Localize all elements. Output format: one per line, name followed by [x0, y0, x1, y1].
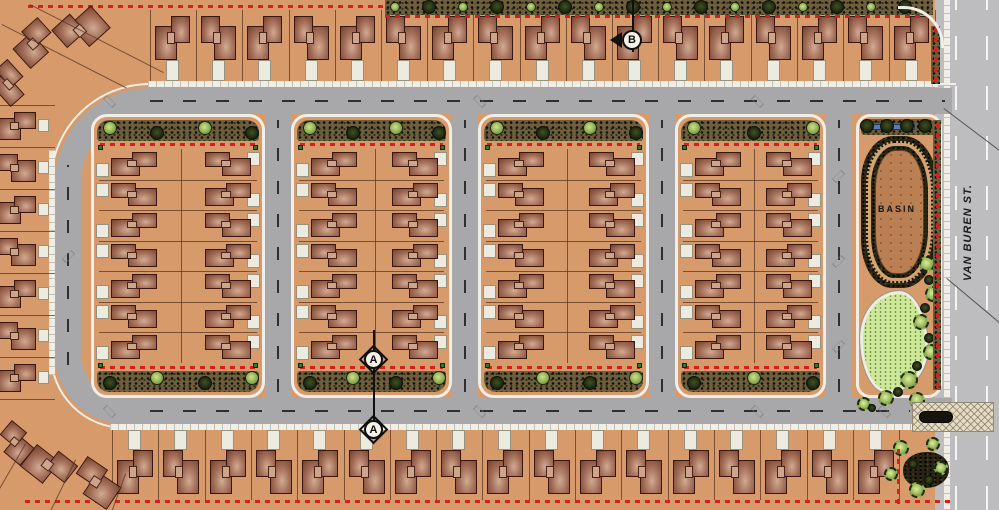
tree: [103, 376, 117, 390]
house-court: [10, 122, 19, 130]
accent-shrub: [98, 145, 103, 150]
house-court: [167, 32, 175, 44]
house: [392, 335, 438, 359]
house: [709, 16, 744, 60]
house-court: [127, 313, 137, 320]
section-marker-a-lower: A: [364, 420, 383, 439]
lot-line: [150, 10, 151, 81]
house: [589, 183, 635, 207]
driveway: [38, 203, 49, 216]
lot-line: [520, 10, 521, 81]
red-hedge: [300, 143, 443, 146]
house-court: [327, 221, 337, 228]
street-tree: [762, 0, 776, 14]
street-centerline: [150, 100, 945, 102]
tree: [490, 376, 504, 390]
house-court: [127, 160, 137, 167]
landscape-strip: [97, 120, 259, 141]
house: [0, 280, 36, 308]
shrub: [893, 387, 903, 397]
tree: [687, 121, 701, 135]
lot-line: [299, 271, 444, 272]
house: [766, 274, 812, 298]
house-court: [268, 466, 276, 478]
house: [695, 213, 741, 237]
driveway: [96, 224, 109, 238]
house-court: [711, 252, 721, 259]
house: [498, 183, 544, 207]
house: [525, 16, 560, 60]
house: [756, 16, 791, 60]
house-court: [327, 160, 337, 167]
lot-line: [0, 147, 55, 148]
house-court: [221, 252, 231, 259]
house: [302, 450, 338, 494]
house-court: [514, 252, 524, 259]
driveway: [296, 224, 309, 238]
driveway: [813, 60, 826, 81]
palm-tree: [918, 119, 932, 133]
house-court: [361, 466, 369, 478]
house-court: [453, 466, 461, 478]
street-tree: [458, 2, 468, 12]
house: [311, 213, 357, 237]
lot-line: [427, 10, 428, 81]
lot-line: [704, 10, 705, 81]
lot-line: [99, 210, 257, 211]
red-hedge: [487, 366, 640, 369]
landscape-strip: [97, 371, 259, 392]
driveway: [296, 163, 309, 177]
palm-tree: [900, 119, 914, 133]
house-court: [408, 191, 418, 198]
driveway: [96, 305, 109, 319]
driveway: [637, 430, 650, 450]
house: [589, 152, 635, 176]
house-court: [127, 252, 137, 259]
house: [766, 244, 812, 268]
street-centerline: [277, 120, 279, 392]
driveway: [483, 244, 496, 258]
house-court: [537, 32, 545, 44]
house: [487, 450, 523, 494]
house: [163, 450, 199, 494]
accent-shrub: [253, 145, 258, 150]
residential-block: [478, 114, 649, 398]
tree: [747, 371, 761, 385]
house: [392, 274, 438, 298]
boundary-red: [936, 122, 939, 388]
house: [441, 450, 477, 494]
lot-line: [482, 430, 483, 500]
lot-line: [299, 210, 444, 211]
house: [311, 305, 357, 329]
driveway: [397, 60, 410, 81]
park-tree: [909, 482, 925, 498]
house-court: [711, 221, 721, 228]
landscape-strip: [484, 371, 643, 392]
shrub: [868, 404, 876, 412]
lot-line: [760, 430, 761, 500]
house: [589, 244, 635, 268]
lot-line: [0, 315, 55, 316]
house: [205, 244, 251, 268]
park-tree: [934, 461, 948, 475]
house: [311, 274, 357, 298]
driveway: [582, 60, 595, 81]
house-court: [860, 32, 868, 44]
house-court: [583, 32, 591, 44]
house-court: [408, 160, 418, 167]
tree: [629, 126, 643, 140]
accent-shrub: [682, 145, 687, 150]
house: [392, 213, 438, 237]
house-court: [127, 221, 137, 228]
house: [392, 244, 438, 268]
house: [719, 450, 755, 494]
house: [205, 335, 251, 359]
lot-line: [0, 357, 55, 358]
driveway: [680, 305, 693, 319]
house: [386, 16, 421, 60]
house: [848, 16, 883, 60]
lot-line: [99, 180, 257, 181]
house: [498, 305, 544, 329]
driveway: [305, 60, 318, 81]
house-court: [605, 282, 615, 289]
house: [8, 17, 60, 69]
driveway: [859, 60, 872, 81]
lot-line: [299, 241, 444, 242]
house-court: [605, 252, 615, 259]
house: [395, 450, 431, 494]
street-tree: [422, 0, 436, 14]
driveway: [498, 430, 511, 450]
driveway: [351, 60, 364, 81]
driveway: [905, 60, 918, 81]
lot-line: [853, 430, 854, 500]
house: [673, 450, 709, 494]
lot-line: [486, 241, 641, 242]
lot-line: [754, 149, 755, 363]
house-court: [127, 343, 137, 350]
lot-line: [486, 302, 641, 303]
park-tree: [893, 440, 909, 456]
house: [695, 274, 741, 298]
house: [0, 196, 36, 224]
house: [210, 450, 246, 494]
lot-line: [99, 271, 257, 272]
street-tree: [866, 2, 876, 12]
street-tree: [390, 2, 400, 12]
lot-line: [889, 10, 890, 81]
house-court: [408, 252, 418, 259]
lot-line: [683, 332, 818, 333]
house: [589, 274, 635, 298]
house-court: [685, 466, 693, 478]
driveway: [680, 224, 693, 238]
lot-line: [807, 430, 808, 500]
street-tree: [694, 0, 708, 14]
lot-line: [486, 271, 641, 272]
house: [802, 16, 837, 60]
house-court: [605, 343, 615, 350]
driveway: [258, 60, 271, 81]
boundary-red: [897, 448, 900, 504]
house: [766, 183, 812, 207]
house: [111, 244, 157, 268]
house-court: [10, 206, 19, 214]
house: [117, 450, 153, 494]
lot-line: [473, 10, 474, 81]
accent-shrub: [637, 145, 642, 150]
basin-label: BASIN: [866, 205, 928, 214]
park-tree: [913, 314, 929, 330]
lot-line: [486, 210, 641, 211]
house-court: [314, 466, 322, 478]
lot-line: [181, 149, 182, 363]
house: [205, 183, 251, 207]
house: [812, 450, 848, 494]
lot-line: [205, 430, 206, 500]
street-tree: [730, 2, 740, 12]
site-plan-drawing: [0, 0, 999, 510]
driveway: [443, 60, 456, 81]
house: [155, 16, 190, 60]
driveway: [483, 346, 496, 360]
street-centerline: [150, 410, 910, 412]
house: [663, 16, 698, 60]
house-court: [306, 32, 314, 44]
tree: [303, 376, 317, 390]
house-court: [514, 221, 524, 228]
lot-line: [843, 10, 844, 81]
driveway: [96, 346, 109, 360]
driveway: [296, 183, 309, 197]
section-marker-a-upper: A: [364, 350, 383, 369]
house-court: [10, 248, 19, 256]
house: [765, 450, 801, 494]
section-arrow-b-icon: [610, 32, 622, 48]
accent-shrub: [440, 145, 445, 150]
house: [695, 305, 741, 329]
house: [0, 322, 36, 350]
house-court: [408, 343, 418, 350]
house-court: [327, 313, 337, 320]
lot-line: [289, 10, 290, 81]
house-court: [546, 466, 554, 478]
house: [392, 305, 438, 329]
house: [111, 305, 157, 329]
driveway: [96, 163, 109, 177]
lot-line: [344, 430, 345, 500]
accent-shrub: [298, 145, 303, 150]
driveway: [128, 430, 141, 450]
lot-line: [335, 10, 336, 81]
house-court: [213, 32, 221, 44]
house: [392, 152, 438, 176]
driveway: [483, 285, 496, 299]
driveway: [296, 285, 309, 299]
driveway: [38, 119, 49, 132]
section-marker-b: B: [622, 30, 642, 50]
house-court: [777, 466, 785, 478]
driveway: [212, 60, 225, 81]
house: [626, 450, 662, 494]
driveway: [536, 60, 549, 81]
van-buren-street-label: VAN BUREN ST.: [962, 172, 986, 294]
lot-line: [683, 210, 818, 211]
lot-line: [683, 180, 818, 181]
driveway: [96, 183, 109, 197]
driveway: [869, 430, 882, 450]
driveway: [680, 163, 693, 177]
house-court: [782, 252, 792, 259]
house: [205, 305, 251, 329]
driveway: [489, 60, 502, 81]
landscape-strip: [484, 120, 643, 141]
driveway: [38, 245, 49, 258]
house-court: [514, 160, 524, 167]
tree: [629, 371, 643, 385]
house: [311, 335, 357, 359]
accent-shrub: [485, 363, 490, 368]
accent-shrub: [98, 363, 103, 368]
tree: [245, 126, 259, 140]
lot-line: [0, 273, 55, 274]
lot-line: [0, 231, 55, 232]
house: [205, 152, 251, 176]
lot-line: [299, 180, 444, 181]
house: [392, 183, 438, 207]
lot-line: [621, 430, 622, 500]
lot-line: [297, 430, 298, 500]
house-court: [129, 466, 137, 478]
house-court: [222, 466, 230, 478]
tree: [198, 376, 212, 390]
street-tree: [662, 2, 672, 12]
lot-line: [99, 241, 257, 242]
driveway: [38, 329, 49, 342]
accent-shrub: [814, 363, 819, 368]
house-court: [711, 160, 721, 167]
house: [766, 152, 812, 176]
house: [589, 213, 635, 237]
boundary-red: [385, 15, 933, 18]
lot-line: [99, 332, 257, 333]
driveway: [720, 60, 733, 81]
palm-tree: [860, 119, 874, 133]
lot-line: [299, 332, 444, 333]
house-court: [782, 160, 792, 167]
house: [111, 213, 157, 237]
shrub: [908, 459, 918, 469]
boundary-red: [25, 500, 953, 503]
entry-monument: [919, 411, 953, 423]
lot-line: [714, 430, 715, 500]
house: [247, 16, 282, 60]
street-tree: [594, 2, 604, 12]
lot-line: [251, 430, 252, 500]
house: [0, 238, 36, 266]
lot-line: [390, 430, 391, 500]
house-court: [407, 466, 415, 478]
house: [349, 450, 385, 494]
lot-line: [683, 302, 818, 303]
house-court: [605, 191, 615, 198]
red-hedge: [684, 143, 817, 146]
house-court: [711, 282, 721, 289]
section-letter-b: B: [628, 34, 636, 46]
house-court: [514, 282, 524, 289]
tree: [490, 121, 504, 135]
accent-shrub: [253, 363, 258, 368]
driveway: [730, 430, 743, 450]
driveway: [545, 430, 558, 450]
lot-line: [0, 189, 55, 190]
lot-line: [566, 10, 567, 81]
lot-line: [529, 430, 530, 500]
house-court: [605, 160, 615, 167]
driveway: [452, 430, 465, 450]
driveway: [406, 430, 419, 450]
driveway: [483, 305, 496, 319]
house: [205, 213, 251, 237]
house: [294, 16, 329, 60]
shrub: [924, 475, 934, 485]
house: [111, 152, 157, 176]
driveway: [96, 244, 109, 258]
house: [111, 183, 157, 207]
tree: [389, 376, 403, 390]
house-court: [10, 164, 19, 172]
lot-line: [99, 302, 257, 303]
driveway: [483, 183, 496, 197]
driveway: [296, 346, 309, 360]
driveway: [483, 224, 496, 238]
house-court: [490, 32, 498, 44]
lot-line: [486, 332, 641, 333]
house-court: [259, 32, 267, 44]
tree: [806, 121, 820, 135]
tree: [198, 121, 212, 135]
house-court: [221, 343, 231, 350]
driveway: [680, 183, 693, 197]
house-court: [675, 32, 683, 44]
driveway: [221, 430, 234, 450]
house-court: [514, 191, 524, 198]
house: [589, 335, 635, 359]
section-letter-a: A: [370, 424, 378, 436]
house-court: [592, 466, 600, 478]
shrub: [912, 361, 922, 371]
tree: [303, 121, 317, 135]
park-tree: [926, 437, 940, 451]
driveway: [680, 244, 693, 258]
house: [534, 450, 570, 494]
house-court: [605, 313, 615, 320]
lane-line: [986, 0, 988, 510]
house-court: [10, 332, 19, 340]
driveway: [296, 244, 309, 258]
house: [766, 213, 812, 237]
lot-line: [299, 302, 444, 303]
landscape-strip: [297, 120, 446, 141]
palm-tree: [880, 119, 894, 133]
house-court: [711, 191, 721, 198]
street-centerline: [464, 120, 466, 392]
driveway: [684, 430, 697, 450]
